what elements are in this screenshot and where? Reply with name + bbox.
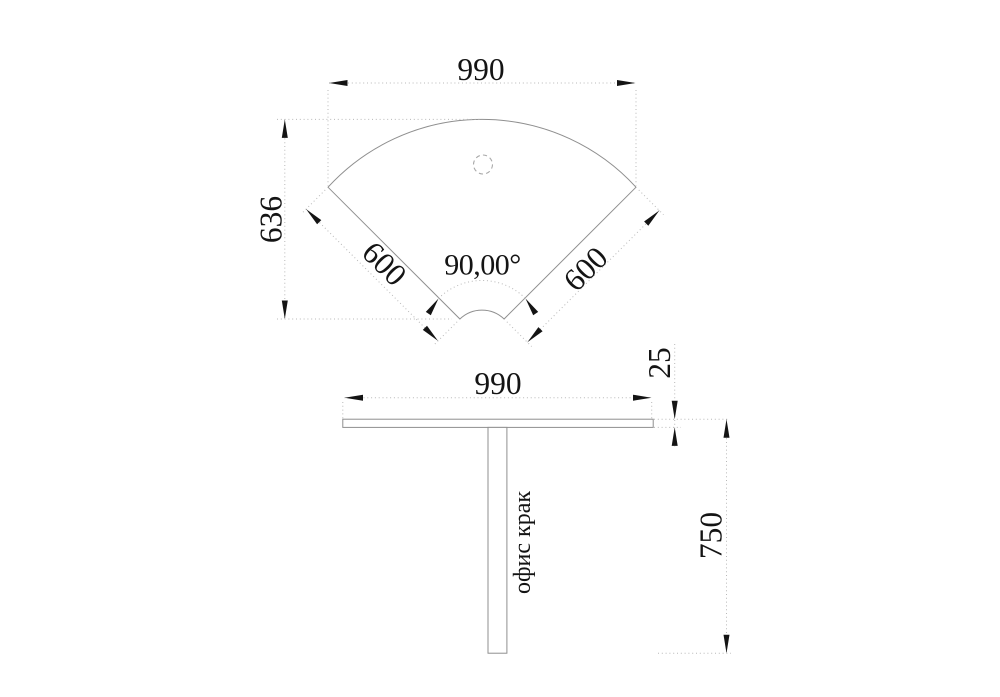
svg-text:990: 990 (457, 52, 504, 87)
svg-text:90,00°: 90,00° (444, 249, 521, 282)
svg-text:750: 750 (694, 512, 729, 559)
svg-text:25: 25 (642, 347, 677, 379)
svg-text:636: 636 (254, 196, 289, 243)
svg-text:990: 990 (474, 366, 521, 401)
svg-text:офис крак: офис крак (510, 491, 536, 594)
